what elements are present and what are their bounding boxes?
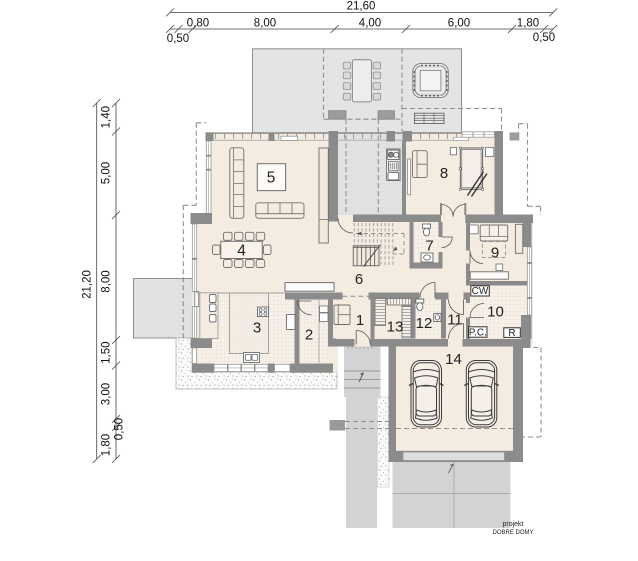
svg-text:projekt: projekt	[502, 521, 523, 528]
svg-text:1,50: 1,50	[101, 342, 113, 364]
svg-text:1: 1	[356, 312, 364, 329]
svg-text:9: 9	[491, 245, 499, 262]
svg-text:21,60: 21,60	[347, 1, 376, 13]
svg-text:6: 6	[355, 271, 363, 288]
svg-text:8,00: 8,00	[101, 270, 113, 292]
svg-text:10: 10	[487, 304, 504, 321]
svg-text:14: 14	[445, 351, 462, 368]
svg-text:DOBRE DOMY: DOBRE DOMY	[492, 530, 533, 536]
svg-text:7: 7	[425, 238, 433, 255]
svg-text:13: 13	[387, 319, 404, 336]
svg-text:3: 3	[253, 320, 261, 337]
svg-text:12: 12	[416, 315, 433, 332]
svg-text:6,00: 6,00	[448, 18, 470, 30]
svg-text:0,50: 0,50	[167, 33, 189, 45]
svg-text:8,00: 8,00	[254, 18, 276, 30]
svg-text:5: 5	[267, 170, 276, 187]
svg-text:8: 8	[440, 165, 448, 182]
svg-text:1,40: 1,40	[101, 106, 113, 128]
svg-text:2: 2	[305, 327, 313, 344]
svg-text:4: 4	[237, 243, 246, 260]
svg-text:0,50: 0,50	[114, 418, 126, 440]
svg-text:0,80: 0,80	[187, 18, 209, 30]
svg-text:R: R	[508, 328, 515, 339]
svg-text:CW: CW	[472, 286, 489, 297]
svg-text:4,00: 4,00	[359, 18, 381, 30]
svg-text:1,80: 1,80	[517, 18, 539, 30]
svg-text:3,00: 3,00	[101, 383, 113, 405]
svg-text:5,00: 5,00	[101, 162, 113, 184]
svg-text:21,20: 21,20	[82, 270, 94, 299]
svg-text:0,50: 0,50	[533, 32, 555, 44]
svg-text:P.C.: P.C.	[469, 327, 487, 338]
svg-text:1,80: 1,80	[101, 434, 113, 456]
